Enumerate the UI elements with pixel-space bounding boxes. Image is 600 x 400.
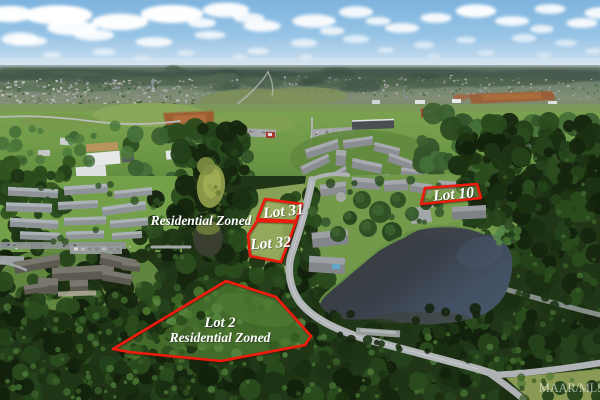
svg-text:Lot 32: Lot 32 bbox=[249, 234, 292, 254]
svg-text:Residential Zoned: Residential Zoned bbox=[150, 213, 252, 228]
svg-text:MAAR/MLS: MAAR/MLS bbox=[539, 381, 600, 395]
svg-text:Lot 2: Lot 2 bbox=[203, 315, 235, 331]
svg-text:Residential Zoned: Residential Zoned bbox=[169, 330, 271, 345]
